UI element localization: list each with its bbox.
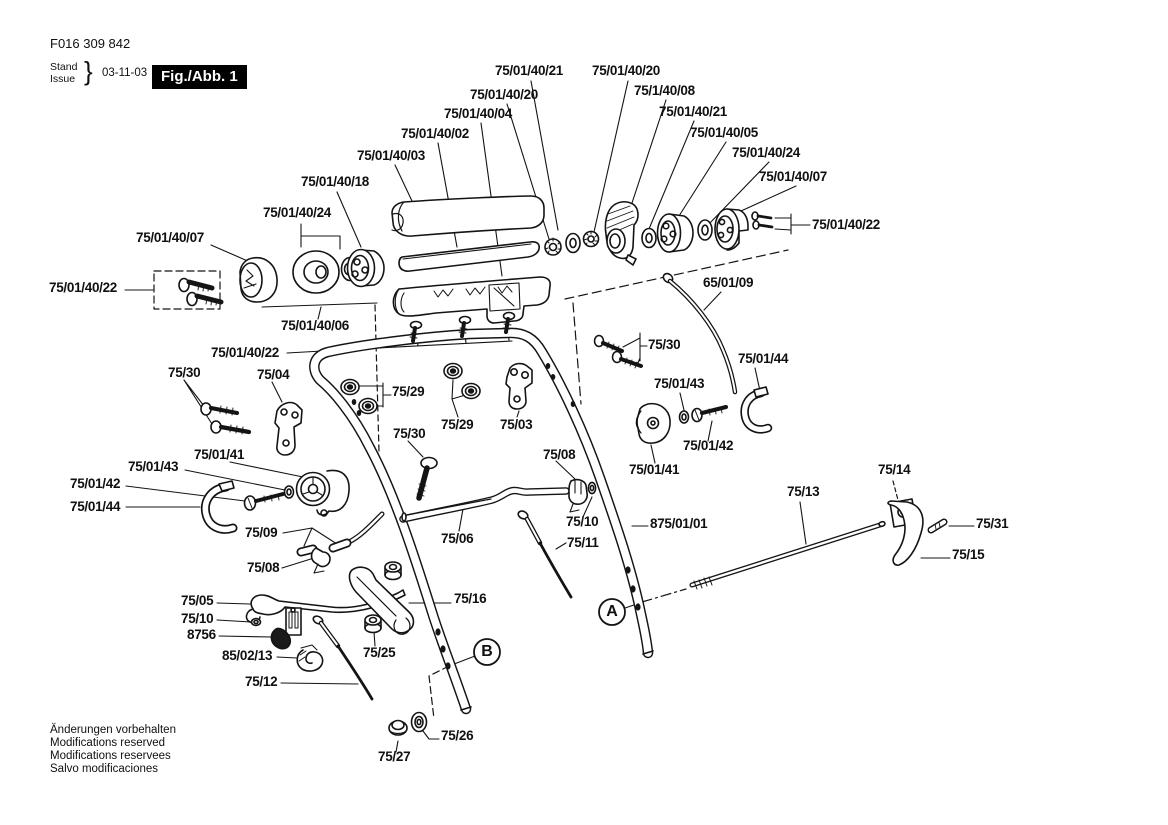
roller-drum-right <box>658 214 694 252</box>
spring-clip <box>297 645 322 671</box>
figure-label: Fig./Abb. 1 <box>152 65 247 89</box>
part-callout: 75/01/40/21 <box>659 105 727 118</box>
part-callout: 75/01/40/05 <box>690 126 758 139</box>
cable-lower-right <box>517 510 571 597</box>
bracket-plate <box>349 562 413 634</box>
revision-date: 03-11-03 <box>102 67 147 79</box>
part-callout: 75/11 <box>567 536 599 549</box>
part-callout: 75/01/44 <box>738 352 788 365</box>
part-callout: 75/01/41 <box>629 463 679 476</box>
part-callout: 75/05 <box>181 594 213 607</box>
top-shell <box>392 196 544 236</box>
washer-and-nut-row <box>545 202 772 265</box>
view-marker-b: B <box>474 643 500 661</box>
clamp-block-right <box>506 364 532 409</box>
cable-clip-right <box>569 480 596 512</box>
part-callout: 75/30 <box>648 338 680 351</box>
part-callout: 75/1/40/08 <box>634 84 695 97</box>
part-callout: 75/01/43 <box>654 377 704 390</box>
part-callout: 8756 <box>187 628 216 641</box>
hex-bolts-right <box>595 336 642 369</box>
blade-bar <box>399 242 539 271</box>
revision-label-de: Stand <box>50 61 77 73</box>
part-callout: 75/15 <box>952 548 984 561</box>
part-callout: 75/03 <box>500 418 532 431</box>
part-callout: 75/01/40/04 <box>444 107 512 120</box>
linkage-rod <box>402 490 566 521</box>
actuator-rod <box>692 521 886 589</box>
part-callout: 75/01/40/22 <box>211 346 279 359</box>
bolt-pair-left <box>179 279 221 306</box>
cable-clamp-right <box>637 387 769 443</box>
part-callout: 75/01/41 <box>194 448 244 461</box>
starter-handle-group <box>888 499 944 565</box>
part-callout: 75/14 <box>878 463 910 476</box>
part-callout: 75/01/40/06 <box>281 319 349 332</box>
revision-label-en: Issue <box>50 73 77 85</box>
roller-assembly <box>179 196 772 392</box>
bottom-fasteners <box>389 713 427 736</box>
view-marker-a: A <box>599 603 625 621</box>
part-callout: 75/06 <box>441 532 473 545</box>
part-callout: 75/08 <box>247 561 279 574</box>
ratchet-pawl <box>605 202 638 265</box>
part-callout: 75/29 <box>441 418 473 431</box>
part-callout: 75/01/40/02 <box>401 127 469 140</box>
part-callout: 85/02/13 <box>222 649 272 662</box>
document-number: F016 309 842 <box>50 36 130 51</box>
part-callout: 75/10 <box>566 515 598 528</box>
part-callout: 75/01/40/22 <box>49 281 117 294</box>
screw-pair-right <box>752 212 772 229</box>
end-cap-left <box>240 258 277 302</box>
exploded-view-drawing <box>0 0 1168 825</box>
part-callout: 75/16 <box>454 592 486 605</box>
cable-connector-group <box>301 514 382 573</box>
clamp-block-left <box>275 403 302 455</box>
roller-wheel <box>293 251 339 293</box>
part-callout: 75/30 <box>393 427 425 440</box>
part-callout: 75/10 <box>181 612 213 625</box>
part-callout: 75/12 <box>245 675 277 688</box>
part-callout: 75/27 <box>378 750 410 763</box>
part-callout: 75/01/40/07 <box>136 231 204 244</box>
part-callout: 75/01/42 <box>70 477 120 490</box>
legal-footer: Änderungen vorbehalten Modifications res… <box>50 724 176 776</box>
brace-glyph: } <box>84 56 93 87</box>
part-callout: 75/01/40/20 <box>592 64 660 77</box>
cable-pulley-left <box>205 470 349 529</box>
parts-diagram-page: F016 309 842 Stand Issue } 03-11-03 Fig.… <box>0 0 1168 825</box>
end-cap-right <box>715 209 748 250</box>
part-callout: 75/01/40/24 <box>263 206 331 219</box>
part-callout: 75/13 <box>787 485 819 498</box>
part-callout: 75/01/40/22 <box>812 218 880 231</box>
footer-line-en: Modifications reserved <box>50 737 176 750</box>
part-callout: 75/26 <box>441 729 473 742</box>
part-callout: 875/01/01 <box>650 517 707 530</box>
revision-label: Stand Issue <box>50 61 77 85</box>
part-callout: 75/01/40/03 <box>357 149 425 162</box>
part-callout: 75/01/40/24 <box>732 146 800 159</box>
part-callout: 75/01/40/07 <box>759 170 827 183</box>
bolt-vertical <box>417 458 437 499</box>
part-callout: 75/01/40/21 <box>495 64 563 77</box>
part-callout: 75/25 <box>363 646 395 659</box>
footer-line-de: Änderungen vorbehalten <box>50 724 176 737</box>
part-callout: 75/29 <box>392 385 424 398</box>
part-callout: 65/01/09 <box>703 276 753 289</box>
part-callout: 75/01/43 <box>128 460 178 473</box>
drive-drum <box>348 250 385 287</box>
part-callout: 75/01/42 <box>683 439 733 452</box>
footer-line-fr: Modifications reservees <box>50 750 176 763</box>
lower-housing <box>393 277 550 323</box>
part-callout: 75/04 <box>257 368 289 381</box>
part-callout: 75/08 <box>543 448 575 461</box>
part-callout: 75/30 <box>168 366 200 379</box>
part-callout: 75/01/44 <box>70 500 120 513</box>
footer-line-es: Salvo modificaciones <box>50 763 176 776</box>
part-callout: 75/31 <box>976 517 1008 530</box>
part-callout: 75/09 <box>245 526 277 539</box>
part-callout: 75/01/40/18 <box>301 175 369 188</box>
part-callout: 75/01/40/20 <box>470 88 538 101</box>
